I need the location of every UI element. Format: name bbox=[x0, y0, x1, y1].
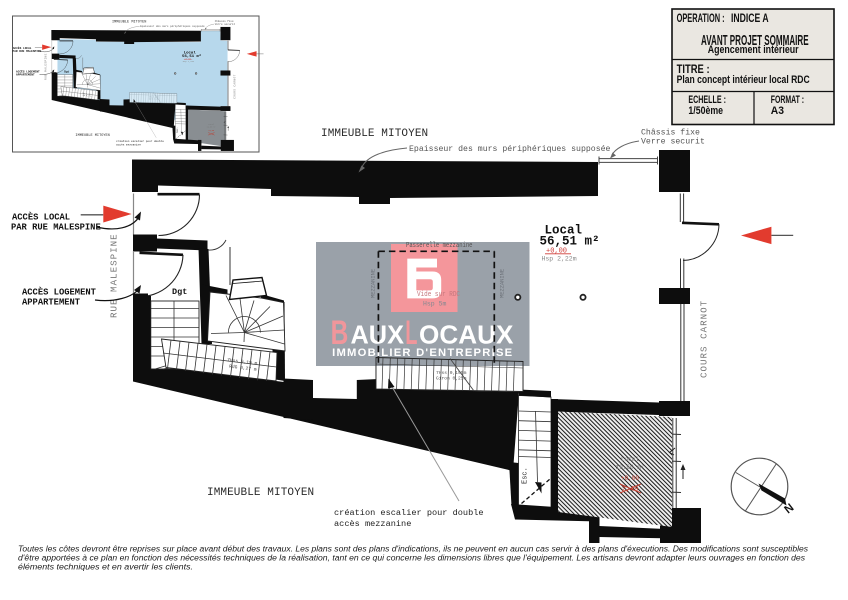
svg-text:éléments techniques et en aver: éléments techniques et en avertir les cl… bbox=[18, 563, 193, 572]
svg-text:OPERATION :: OPERATION : bbox=[677, 11, 725, 25]
svg-text:Passerelle mezzanine: Passerelle mezzanine bbox=[406, 242, 473, 250]
svg-text:MEZZANINE: MEZZANINE bbox=[371, 269, 377, 298]
svg-text:Toutes les côtes devront être: Toutes les côtes devront être reprises s… bbox=[18, 545, 808, 554]
svg-text:Plan concept intérieur local R: Plan concept intérieur local RDC bbox=[677, 74, 810, 86]
svg-text:AUX: AUX bbox=[351, 320, 405, 350]
svg-text:INDICE A: INDICE A bbox=[731, 11, 769, 25]
svg-text:Agencement intérieur: Agencement intérieur bbox=[708, 44, 799, 56]
svg-text:Hsp 5m: Hsp 5m bbox=[423, 301, 447, 308]
svg-text:OCAUX: OCAUX bbox=[419, 320, 514, 350]
svg-text:Vide sur RDC: Vide sur RDC bbox=[417, 291, 460, 299]
svg-text:IMMOBILIER D'ENTREPRISE: IMMOBILIER D'ENTREPRISE bbox=[332, 347, 513, 359]
svg-text:1/50ème: 1/50ème bbox=[688, 105, 723, 117]
svg-text:A3: A3 bbox=[771, 105, 784, 117]
svg-text:d'être apportées à ce plan en: d'être apportées à ce plan en fonction d… bbox=[18, 554, 805, 563]
svg-text:MEZZANINE: MEZZANINE bbox=[500, 269, 506, 298]
